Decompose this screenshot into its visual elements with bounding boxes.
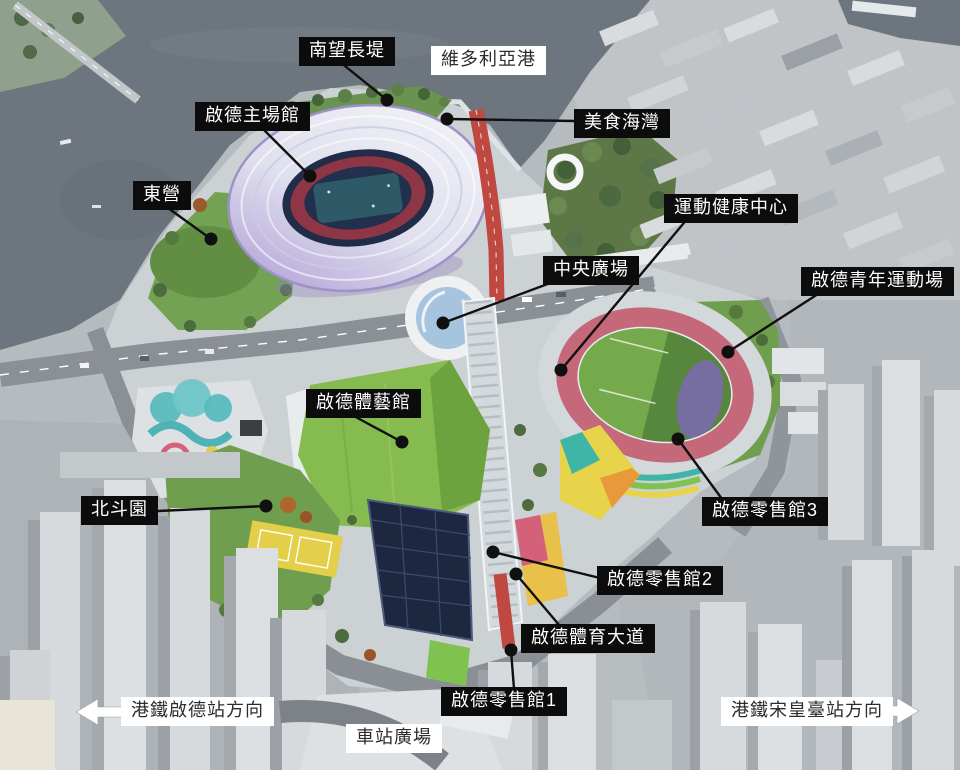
kai-tak-sports-park-aerial-map: 南望長堤 維多利亞港 啟德主場館 美食海灣 東營 運動健康中心 中央廣場 啟德青… — [0, 0, 960, 770]
aerial-rendering — [0, 0, 960, 770]
